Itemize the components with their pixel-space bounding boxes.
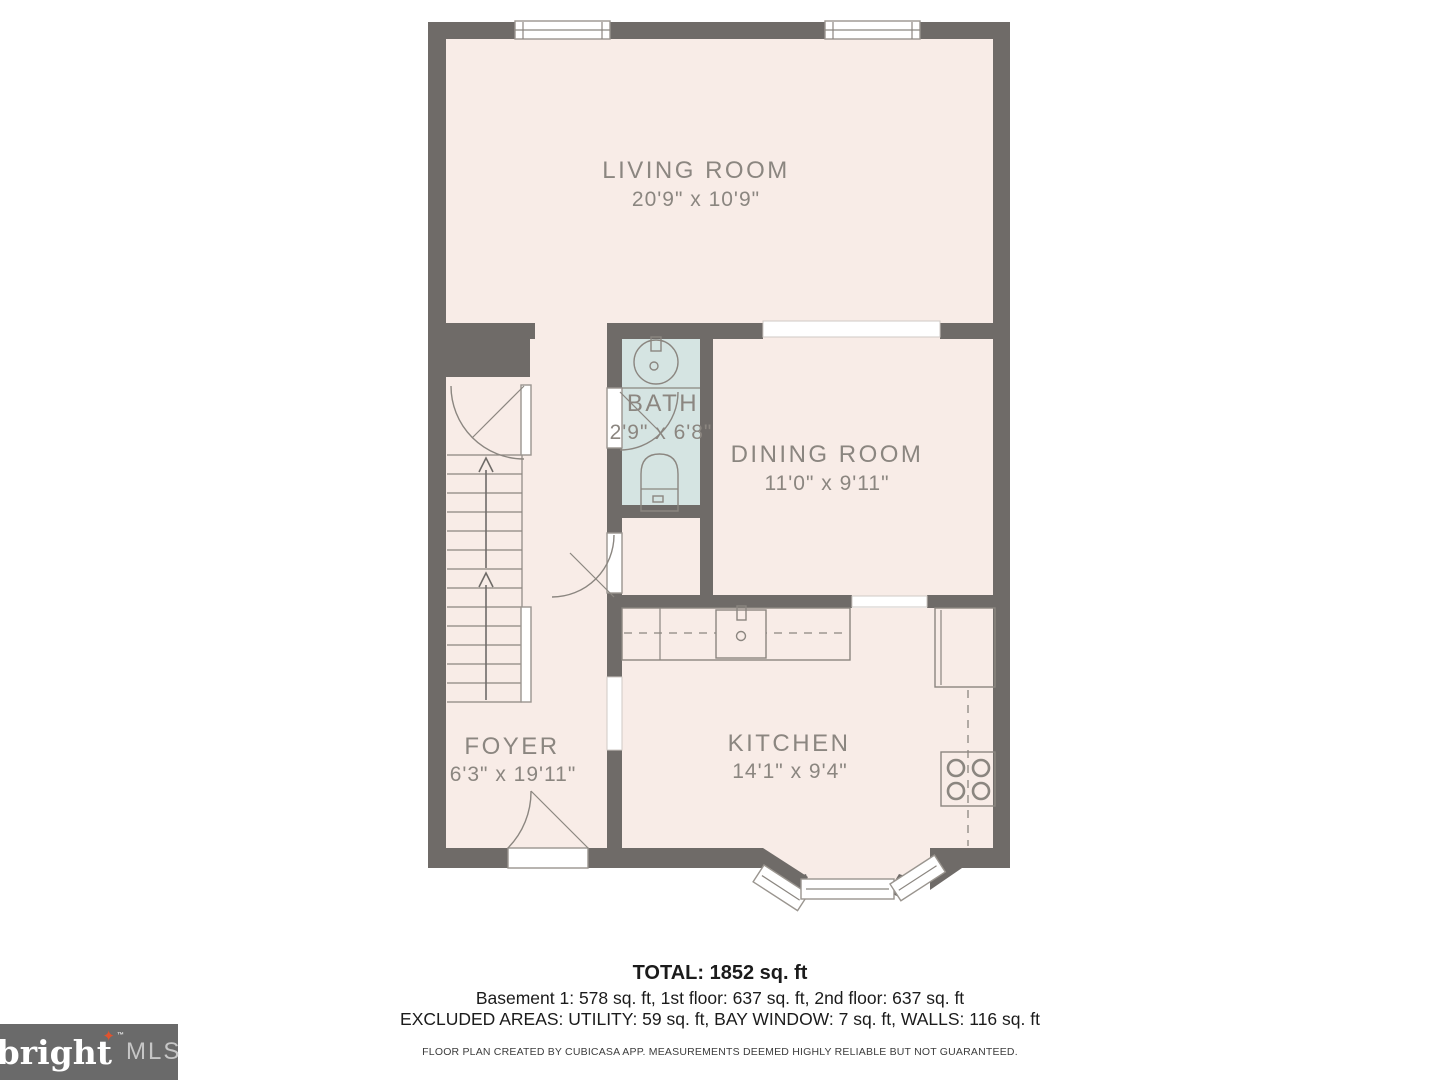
stair-door-panel — [521, 385, 531, 455]
brightmls-brand-text: bright — [0, 1033, 112, 1072]
kitchen-dims: 14'1" x 9'4" — [732, 760, 848, 783]
window-top-right — [825, 21, 920, 39]
floor-areas-line: Basement 1: 578 sq. ft, 1st floor: 637 s… — [0, 988, 1440, 1009]
bath-dims: 2'9" x 6'8" — [610, 421, 713, 444]
sparkle-icon: ✦ — [102, 1029, 115, 1044]
kitchen-area — [622, 608, 995, 848]
total-area: TOTAL: 1852 sq. ft — [0, 962, 1440, 985]
stair-railing — [521, 607, 531, 702]
foyer-kitchen-opening — [607, 677, 622, 750]
excluded-areas-line: EXCLUDED AREAS: UTILITY: 59 sq. ft, BAY … — [0, 1009, 1440, 1030]
foyer-dims: 6'3" x 19'11" — [450, 763, 577, 786]
window-top-left — [515, 21, 610, 39]
foyer-label: FOYER — [464, 733, 559, 760]
brightmls-logo: bright✦™ MLS — [0, 1024, 178, 1080]
dining-kitchen-opening — [852, 596, 927, 607]
living-room-label: LIVING ROOM — [602, 157, 790, 184]
dining-room-dims: 11'0" x 9'11" — [764, 472, 889, 495]
floor-plan: LIVING ROOM 20'9" x 10'9" BATH 2'9" x 6'… — [0, 0, 1440, 950]
kitchen-sink-icon — [716, 606, 766, 658]
area-summary: TOTAL: 1852 sq. ft Basement 1: 578 sq. f… — [0, 962, 1440, 1058]
floor-plan-page: LIVING ROOM 20'9" x 10'9" BATH 2'9" x 6'… — [0, 0, 1440, 1080]
living-room-dims: 20'9" x 10'9" — [632, 188, 760, 211]
kitchen-label: KITCHEN — [728, 730, 851, 757]
dining-room-label: DINING ROOM — [731, 441, 924, 468]
brightmls-wordmark: bright✦™ — [0, 1036, 112, 1069]
living-dining-opening — [763, 321, 940, 337]
closet-area — [622, 518, 700, 595]
mls-text: MLS — [126, 1038, 181, 1066]
disclaimer: FLOOR PLAN CREATED BY CUBICASA APP. MEAS… — [0, 1046, 1440, 1058]
bath-label: BATH — [627, 390, 699, 417]
trademark-symbol: ™ — [117, 1032, 124, 1039]
